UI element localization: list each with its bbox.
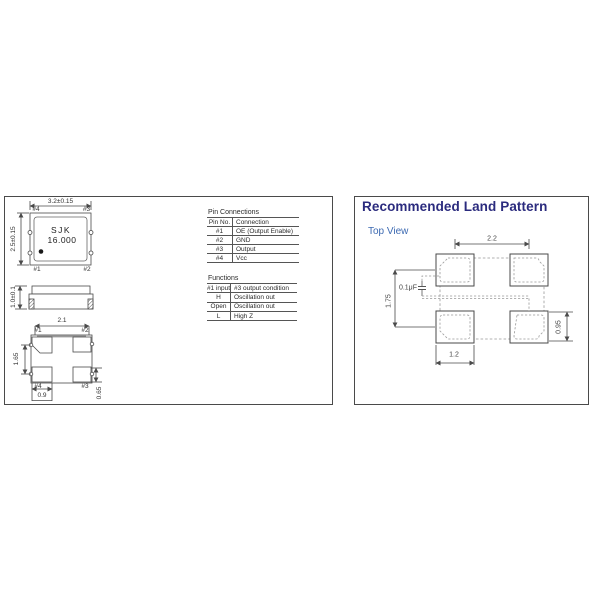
pin-connections-table: Pin Connections Pin No. Connection #1 OE… [207, 208, 299, 263]
chip-brand-marking: SJK [51, 226, 71, 235]
bottom-view-drawing [21, 326, 102, 401]
table-row: #1 OE (Output Enable) [207, 227, 299, 236]
topview-pin1-label: #1 [33, 267, 40, 274]
pin-connection: Vcc [233, 254, 299, 262]
table-header-row: #1 input #3 output condition [207, 284, 297, 293]
input-state: L [207, 312, 231, 320]
bottomview-pin1-label: #1 [34, 328, 41, 335]
dim-bottom-pitch-y: 1.65 [14, 353, 21, 366]
output-condition: Oscillation out [231, 293, 297, 301]
dim-top-width: 3.2±0.15 [48, 199, 73, 206]
input-state: H [207, 293, 231, 301]
output-condition: Oscillation out [231, 303, 297, 311]
pin-no: #4 [207, 254, 233, 262]
table-row: L High Z [207, 312, 297, 321]
dim-top-height: 2.5±0.15 [11, 226, 18, 251]
pad-2 [73, 337, 91, 352]
bottomview-pin3-label: #3 [81, 384, 88, 391]
land-pattern-panel: Recommended Land Pattern Top View [354, 196, 589, 405]
col-header-pin: Pin No. [207, 218, 233, 226]
pin-no: #3 [207, 245, 233, 253]
pad-3 [73, 367, 91, 382]
package-dimensions-panel: 3.2±0.15 2.5±0.15 #4 #3 #1 #2 SJK 16.000… [4, 196, 333, 405]
table-row: #2 GND [207, 236, 299, 245]
dim-land-pad-width: 1.2 [449, 352, 459, 359]
pin-connection: GND [233, 236, 299, 244]
pin1-index-dot [39, 249, 44, 254]
col-header-output: #3 output condition [231, 284, 297, 292]
dim-pad-width: 0.9 [37, 392, 46, 399]
table-row: H Oscillation out [207, 293, 297, 302]
dim-side-height: 1.0±0.1 [11, 286, 18, 308]
bottomview-pin2-label: #2 [81, 328, 88, 335]
chip-frequency-marking: 16.000 [48, 236, 77, 245]
land-pad-top-right [510, 254, 548, 286]
functions-table: Functions #1 input #3 output condition H… [207, 274, 297, 321]
table-row: Open Oscillation out [207, 303, 297, 312]
decoupling-capacitor [418, 281, 426, 296]
functions-title: Functions [207, 274, 297, 284]
dim-land-pad-height: 0.95 [556, 320, 563, 334]
datasheet-page: { "left_panel": { "top_view": { "brand":… [0, 0, 600, 600]
dim-bottom-pitch-x: 2.1 [57, 318, 66, 325]
side-view-drawing [15, 286, 93, 309]
topview-pin4-label: #4 [32, 207, 39, 214]
table-row: #4 Vcc [207, 254, 299, 263]
pin-connections-title: Pin Connections [207, 208, 299, 218]
topview-pin2-label: #2 [83, 267, 90, 274]
land-pad-top-left [436, 254, 474, 286]
col-header-input: #1 input [207, 284, 231, 292]
bottomview-pin4-label: #4 [34, 384, 41, 391]
col-header-connection: Connection [233, 218, 299, 226]
pin-no: #2 [207, 236, 233, 244]
dim-pad-height: 0.65 [97, 387, 104, 400]
table-header-row: Pin No. Connection [207, 218, 299, 227]
dim-land-pitch-x: 2.2 [487, 236, 497, 243]
topview-pin3-label: #3 [83, 207, 90, 214]
output-condition: High Z [231, 312, 297, 320]
input-state: Open [207, 303, 231, 311]
pin-connection: OE (Output Enable) [233, 227, 299, 235]
pin-connection: Output [233, 245, 299, 253]
pad-4 [32, 367, 52, 382]
capacitor-value-label: 0.1μF [399, 285, 417, 292]
land-pad-bottom-right [510, 311, 548, 343]
land-pad-bottom-left [436, 311, 474, 343]
pin-no: #1 [207, 227, 233, 235]
dim-land-pitch-y: 1.75 [386, 294, 393, 308]
table-row: #3 Output [207, 245, 299, 254]
